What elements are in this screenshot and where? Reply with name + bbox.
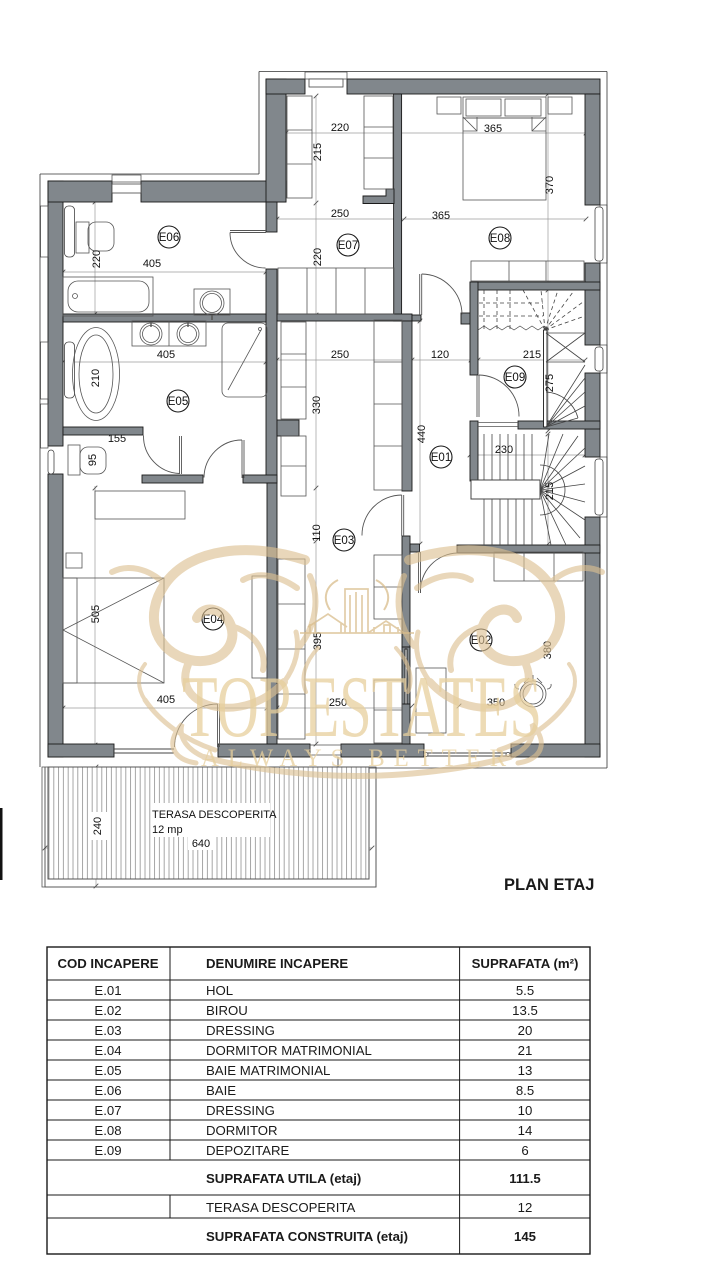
svg-text:220: 220 xyxy=(331,122,349,134)
svg-text:230: 230 xyxy=(495,444,513,456)
svg-text:BIROU: BIROU xyxy=(206,1003,248,1018)
svg-text:E09: E09 xyxy=(505,372,525,384)
svg-text:12 mp: 12 mp xyxy=(152,824,183,836)
svg-text:E.06: E.06 xyxy=(94,1083,121,1098)
svg-text:365: 365 xyxy=(484,123,502,135)
svg-text:E08: E08 xyxy=(490,233,510,245)
svg-text:330: 330 xyxy=(311,396,323,414)
svg-text:E.04: E.04 xyxy=(94,1043,121,1058)
svg-text:220: 220 xyxy=(312,248,324,266)
svg-text:SUPRAFATA CONSTRUITA (etaj): SUPRAFATA CONSTRUITA (etaj) xyxy=(206,1229,408,1244)
svg-text:BAIE MATRIMONIAL: BAIE MATRIMONIAL xyxy=(206,1063,330,1078)
svg-text:240: 240 xyxy=(92,817,104,835)
svg-text:13.5: 13.5 xyxy=(512,1003,538,1018)
svg-text:HOL: HOL xyxy=(206,983,233,998)
svg-text:365: 365 xyxy=(432,210,450,222)
svg-text:20: 20 xyxy=(518,1023,533,1038)
svg-text:E.08: E.08 xyxy=(94,1123,121,1138)
svg-text:DENUMIRE INCAPERE: DENUMIRE INCAPERE xyxy=(206,956,348,971)
svg-text:440: 440 xyxy=(416,425,428,443)
svg-text:E.07: E.07 xyxy=(94,1103,121,1118)
svg-text:12: 12 xyxy=(518,1200,533,1215)
svg-text:DORMITOR: DORMITOR xyxy=(206,1123,278,1138)
svg-text:E07: E07 xyxy=(338,240,358,252)
svg-text:145: 145 xyxy=(514,1229,536,1244)
svg-text:210: 210 xyxy=(90,369,102,387)
svg-text:E.09: E.09 xyxy=(94,1143,121,1158)
svg-text:250: 250 xyxy=(331,349,349,361)
svg-text:275: 275 xyxy=(544,374,556,392)
svg-text:TOP ESTATES: TOP ESTATES xyxy=(182,659,542,756)
svg-text:E06: E06 xyxy=(159,232,179,244)
svg-text:215: 215 xyxy=(544,482,556,500)
svg-text:111.5: 111.5 xyxy=(509,1171,541,1186)
svg-text:120: 120 xyxy=(431,349,449,361)
svg-text:14: 14 xyxy=(518,1123,533,1138)
svg-text:E05: E05 xyxy=(168,396,188,408)
svg-text:E.05: E.05 xyxy=(94,1063,121,1078)
svg-text:220: 220 xyxy=(91,250,103,268)
svg-text:640: 640 xyxy=(192,838,210,850)
svg-text:370: 370 xyxy=(544,176,556,194)
svg-text:5.5: 5.5 xyxy=(516,983,534,998)
svg-text:8.5: 8.5 xyxy=(516,1083,534,1098)
svg-text:405: 405 xyxy=(143,258,161,270)
svg-text:TERASA DESCOPERITA: TERASA DESCOPERITA xyxy=(152,809,277,821)
svg-text:215: 215 xyxy=(523,349,541,361)
svg-text:E.01: E.01 xyxy=(94,983,121,998)
svg-text:SUPRAFATA UTILA (etaj): SUPRAFATA UTILA (etaj) xyxy=(206,1171,361,1186)
svg-text:10: 10 xyxy=(518,1103,533,1118)
svg-text:110: 110 xyxy=(311,524,323,542)
svg-text:155: 155 xyxy=(108,433,126,445)
svg-text:E01: E01 xyxy=(431,452,451,464)
svg-text:405: 405 xyxy=(157,694,175,706)
svg-text:E.03: E.03 xyxy=(94,1023,121,1038)
svg-text:DRESSING: DRESSING xyxy=(206,1023,275,1038)
svg-text:13: 13 xyxy=(518,1063,533,1078)
svg-text:215: 215 xyxy=(312,143,324,161)
svg-text:COD INCAPERE: COD INCAPERE xyxy=(57,956,158,971)
svg-text:ALWAYS BETTER: ALWAYS BETTER xyxy=(201,745,515,772)
svg-text:TERASA DESCOPERITA: TERASA DESCOPERITA xyxy=(206,1200,355,1215)
svg-text:250: 250 xyxy=(331,208,349,220)
svg-text:405: 405 xyxy=(157,349,175,361)
svg-text:505: 505 xyxy=(90,605,102,623)
svg-text:E03: E03 xyxy=(334,535,354,547)
svg-text:21: 21 xyxy=(518,1043,533,1058)
svg-text:BAIE: BAIE xyxy=(206,1083,236,1098)
svg-text:DEPOZITARE: DEPOZITARE xyxy=(206,1143,289,1158)
svg-text:DRESSING: DRESSING xyxy=(206,1103,275,1118)
svg-text:SUPRAFATA (m²): SUPRAFATA (m²) xyxy=(472,956,579,971)
svg-text:6: 6 xyxy=(521,1143,528,1158)
svg-text:PLAN ETAJ: PLAN ETAJ xyxy=(504,876,594,894)
svg-text:E.02: E.02 xyxy=(94,1003,121,1018)
svg-text:95: 95 xyxy=(87,454,99,466)
svg-text:DORMITOR MATRIMONIAL: DORMITOR MATRIMONIAL xyxy=(206,1043,372,1058)
